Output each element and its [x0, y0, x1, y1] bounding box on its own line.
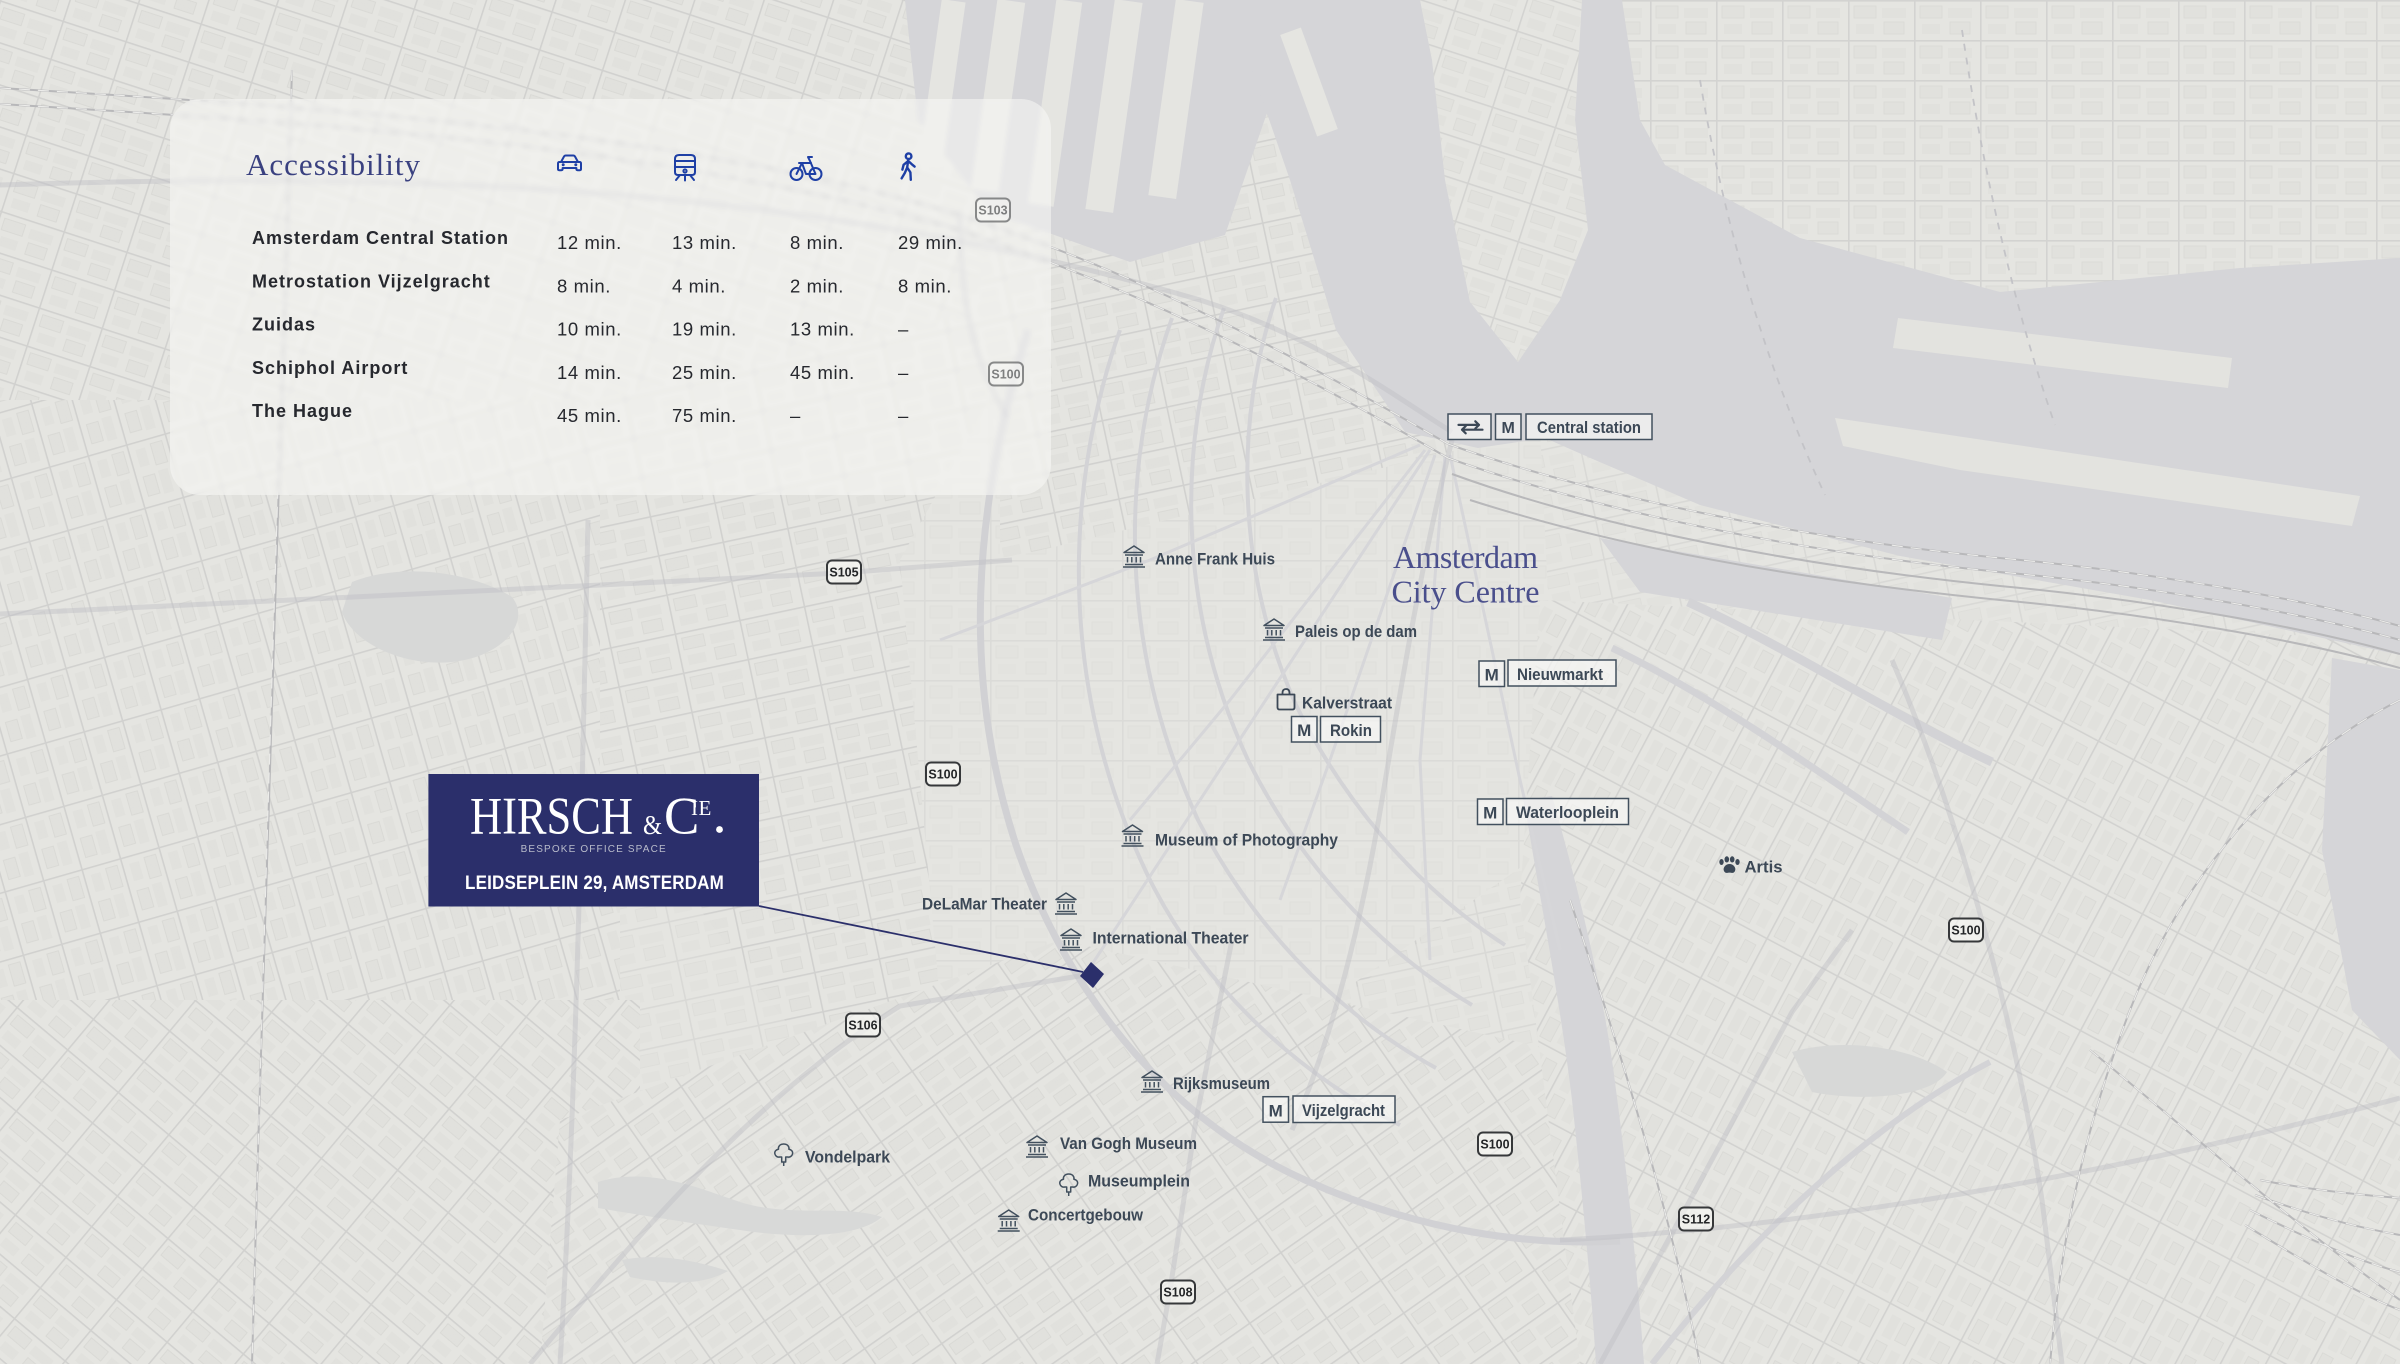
svg-text:Museum of Photography: Museum of Photography [1155, 832, 1339, 850]
svg-text:Van Gogh Museum: Van Gogh Museum [1060, 1135, 1197, 1153]
svg-text:BESPOKE OFFICE SPACE: BESPOKE OFFICE SPACE [521, 844, 667, 855]
svg-text:&: & [643, 810, 662, 840]
svg-text:DeLaMar Theater: DeLaMar Theater [922, 895, 1048, 913]
svg-text:–: – [898, 405, 909, 426]
svg-text:Artis: Artis [1745, 859, 1783, 877]
svg-text:Museumplein: Museumplein [1088, 1173, 1190, 1191]
svg-text:S108: S108 [1163, 1286, 1192, 1300]
svg-text:M: M [1502, 420, 1515, 437]
svg-text:S112: S112 [1682, 1213, 1711, 1227]
svg-text:S105: S105 [829, 566, 858, 580]
svg-text:International Theater: International Theater [1093, 930, 1250, 948]
svg-text:19 min.: 19 min. [672, 319, 737, 340]
svg-text:12 min.: 12 min. [557, 232, 622, 253]
svg-text:14 min.: 14 min. [557, 362, 622, 383]
svg-text:Schiphol Airport: Schiphol Airport [252, 358, 408, 378]
svg-text:Accessibility: Accessibility [246, 147, 421, 182]
svg-text:M: M [1297, 721, 1311, 740]
svg-text:8 min.: 8 min. [557, 275, 611, 296]
svg-text:29 min.: 29 min. [898, 232, 963, 253]
svg-text:8 min.: 8 min. [898, 275, 952, 296]
svg-text:Paleis op de dam: Paleis op de dam [1295, 623, 1417, 641]
svg-text:Anne Frank Huis: Anne Frank Huis [1155, 550, 1275, 568]
svg-text:Rokin: Rokin [1330, 721, 1372, 740]
svg-text:IE: IE [691, 796, 712, 820]
svg-text:LEIDSEPLEIN 29, AMSTERDAM: LEIDSEPLEIN 29, AMSTERDAM [465, 873, 724, 894]
svg-text:S100: S100 [1480, 1138, 1509, 1152]
svg-text:Kalverstraat: Kalverstraat [1302, 694, 1392, 712]
svg-text:Vondelpark: Vondelpark [805, 1149, 891, 1167]
svg-text:–: – [898, 319, 909, 340]
svg-text:S100: S100 [991, 368, 1020, 382]
svg-text:2 min.: 2 min. [790, 275, 844, 296]
svg-text:S106: S106 [848, 1019, 877, 1033]
svg-text:75 min.: 75 min. [672, 405, 737, 426]
svg-text:45 min.: 45 min. [790, 362, 855, 383]
svg-text:Amsterdam Central Station: Amsterdam Central Station [252, 228, 509, 248]
svg-text:S103: S103 [978, 204, 1007, 218]
svg-text:City Centre: City Centre [1392, 574, 1541, 610]
svg-text:Amsterdam: Amsterdam [1393, 539, 1539, 575]
svg-text:M: M [1269, 1101, 1283, 1120]
svg-text:M: M [1483, 804, 1497, 823]
svg-text:Central station: Central station [1537, 418, 1641, 437]
svg-text:Concertgebouw: Concertgebouw [1028, 1207, 1143, 1225]
svg-text:HIRSCH: HIRSCH [470, 788, 633, 846]
svg-text:–: – [898, 362, 909, 383]
svg-text:Rijksmuseum: Rijksmuseum [1173, 1075, 1270, 1093]
svg-text:4 min.: 4 min. [672, 275, 726, 296]
svg-text:8 min.: 8 min. [790, 232, 844, 253]
svg-text:45 min.: 45 min. [557, 405, 622, 426]
svg-text:25 min.: 25 min. [672, 362, 737, 383]
svg-text:Metrostation Vijzelgracht: Metrostation Vijzelgracht [252, 271, 491, 291]
svg-text:S100: S100 [928, 768, 957, 782]
svg-text:Waterlooplein: Waterlooplein [1516, 803, 1619, 822]
svg-text:–: – [790, 405, 801, 426]
svg-text:Zuidas: Zuidas [252, 315, 316, 335]
svg-text:M: M [1485, 666, 1499, 685]
svg-text:The Hague: The Hague [252, 401, 353, 421]
svg-text:13 min.: 13 min. [672, 232, 737, 253]
svg-text:Vijzelgracht: Vijzelgracht [1302, 1101, 1385, 1120]
svg-text:10 min.: 10 min. [557, 319, 622, 340]
svg-text:Nieuwmarkt: Nieuwmarkt [1517, 665, 1603, 684]
svg-text:S100: S100 [1951, 924, 1980, 938]
svg-text:13 min.: 13 min. [790, 319, 855, 340]
